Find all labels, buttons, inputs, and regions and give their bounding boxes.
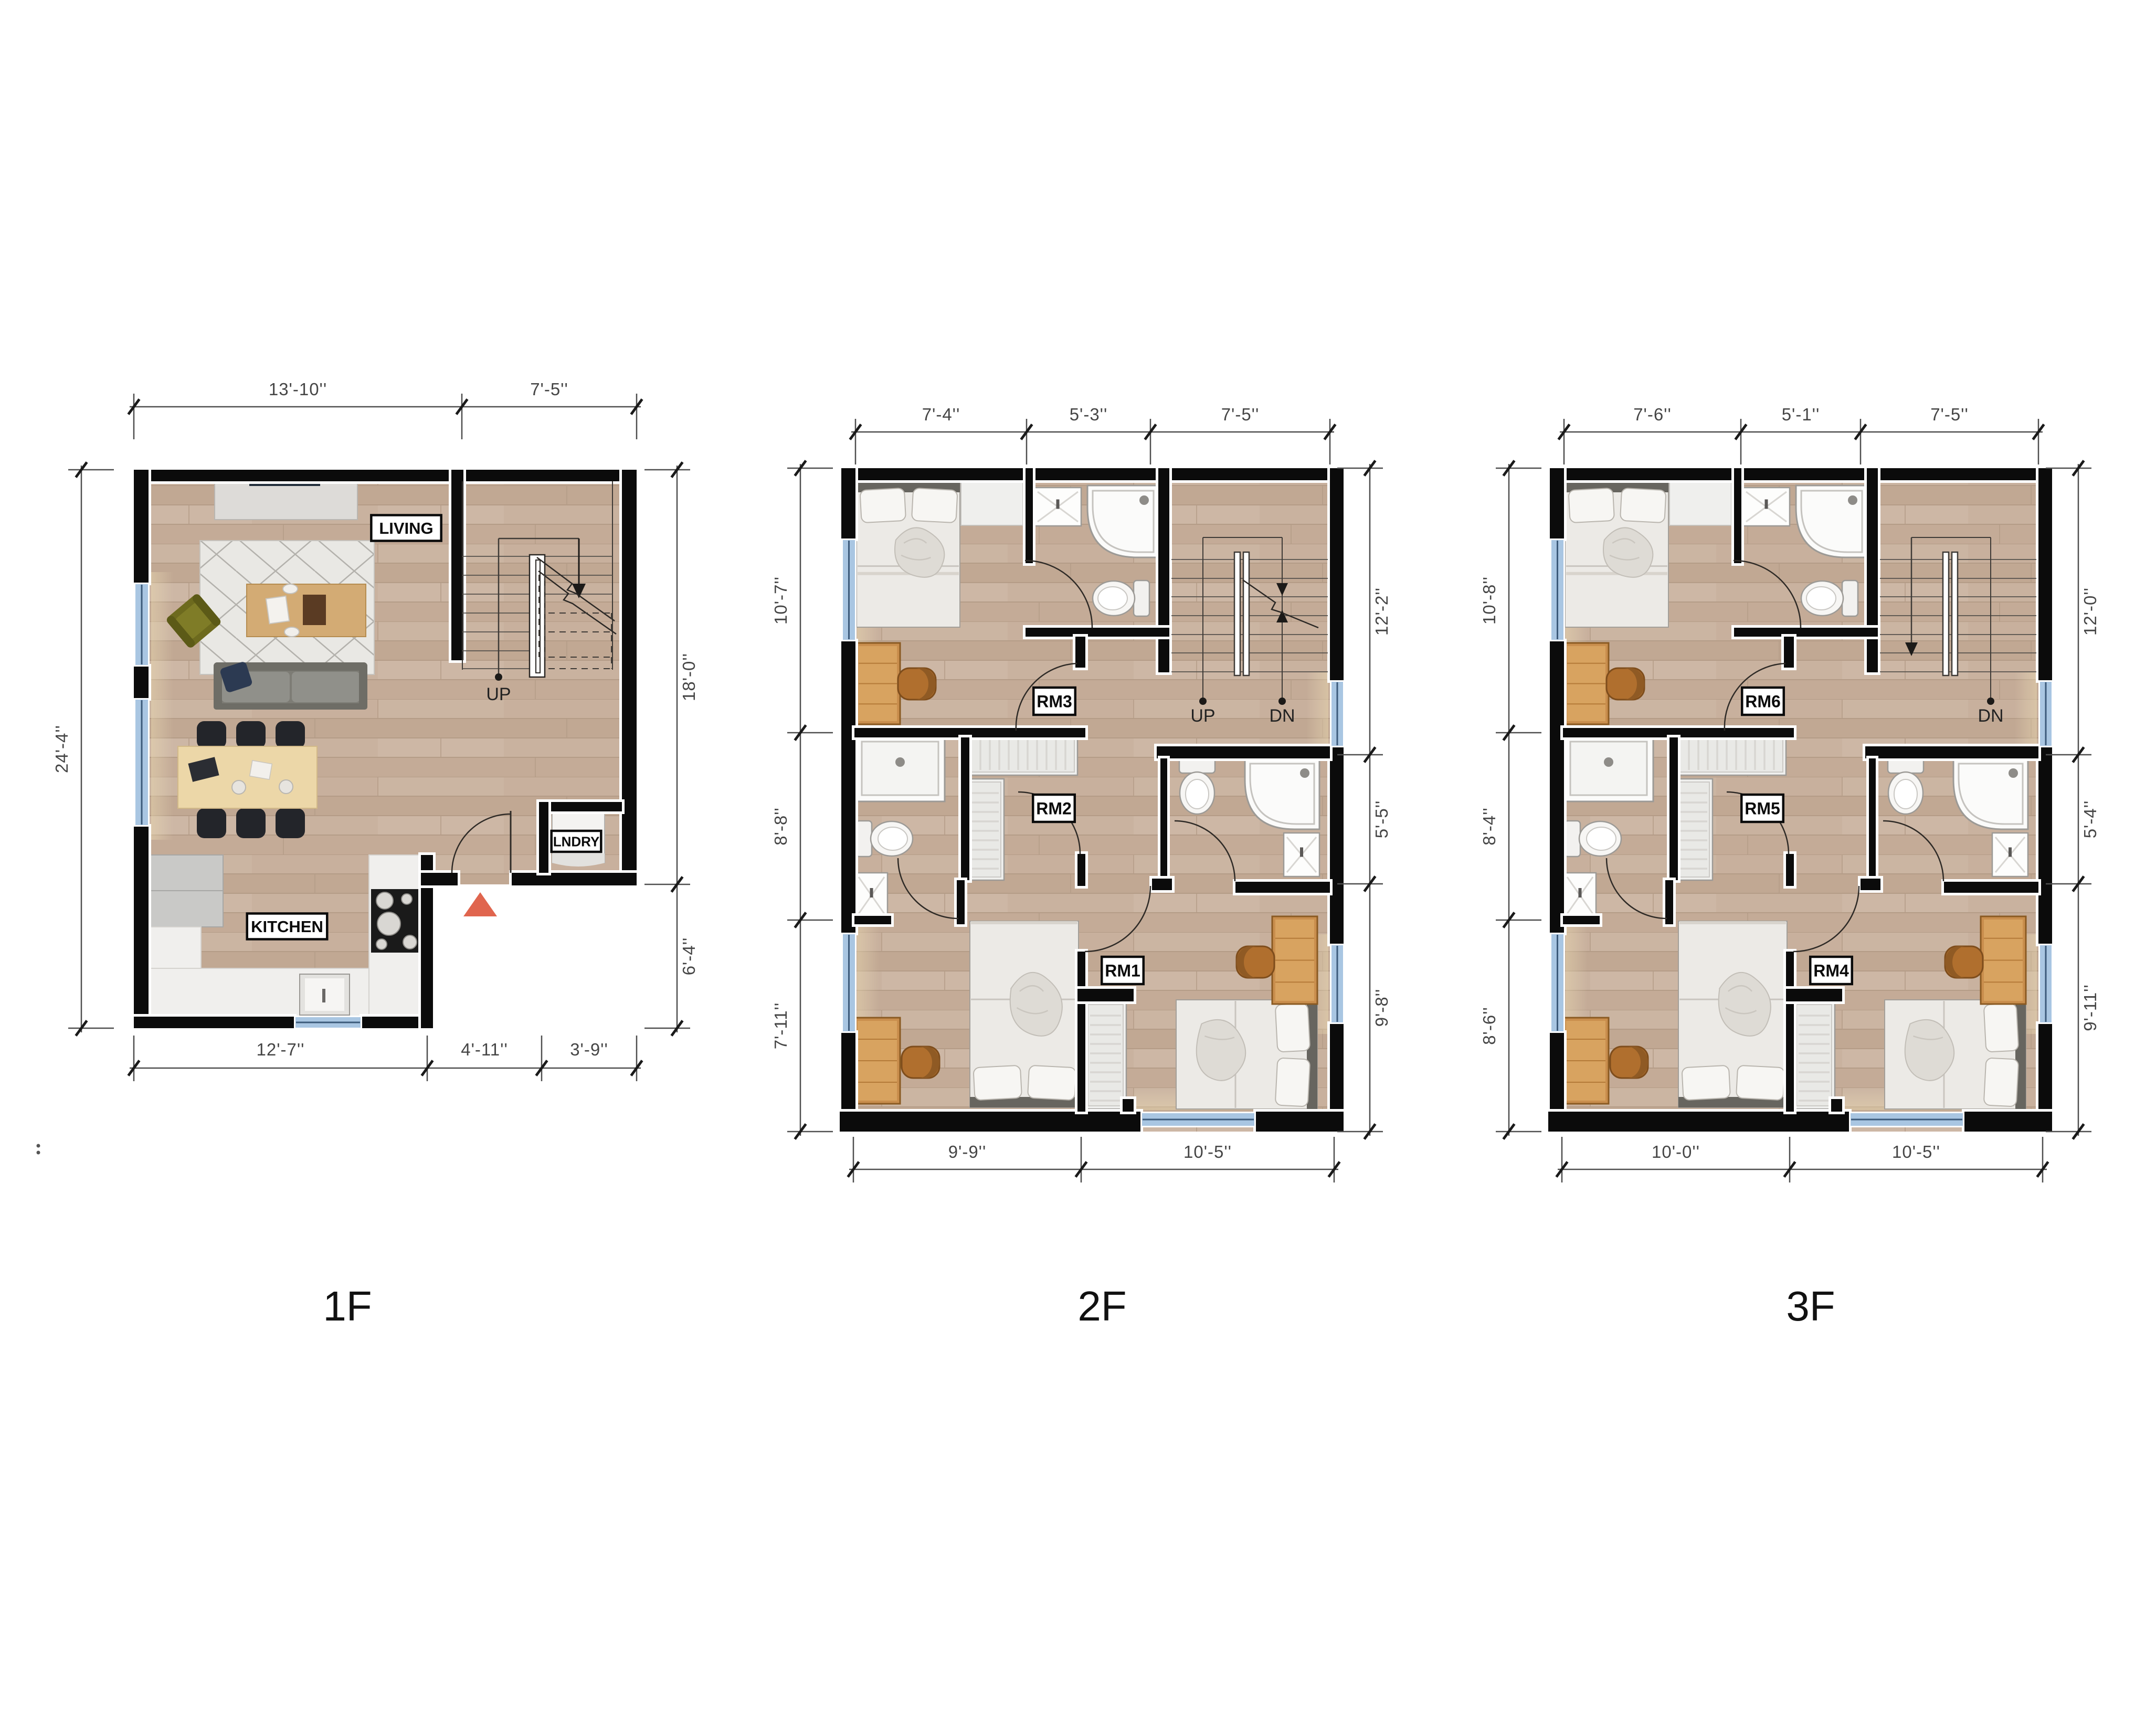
svg-text:7'-6'': 7'-6'': [1633, 405, 1672, 424]
svg-text:10'-5'': 10'-5'': [1892, 1142, 1940, 1161]
svg-text:6'-4'': 6'-4'': [679, 937, 699, 976]
svg-text:7'-5'': 7'-5'': [1930, 405, 1969, 424]
svg-text:3F: 3F: [1786, 1283, 1835, 1329]
svg-text:2F: 2F: [1077, 1283, 1126, 1329]
svg-text:10'-8'': 10'-8'': [1479, 576, 1499, 625]
svg-text:10'-0'': 10'-0'': [1652, 1142, 1700, 1161]
svg-text:9'-9'': 9'-9'': [948, 1142, 987, 1161]
svg-text:8'-4'': 8'-4'': [1479, 807, 1499, 846]
svg-text:LIVING: LIVING: [379, 519, 433, 537]
svg-text:5'-3'': 5'-3'': [1070, 405, 1108, 424]
svg-text:12'-7'': 12'-7'': [257, 1040, 305, 1059]
svg-text:KITCHEN: KITCHEN: [251, 917, 323, 936]
svg-text:LNDRY: LNDRY: [553, 833, 600, 849]
svg-text:DN: DN: [1978, 706, 2003, 726]
svg-text:3'-9'': 3'-9'': [570, 1040, 608, 1059]
svg-text:RM2: RM2: [1036, 799, 1072, 818]
svg-text:RM4: RM4: [1813, 962, 1849, 980]
svg-text:UP: UP: [1190, 706, 1215, 726]
svg-text:1F: 1F: [323, 1283, 372, 1329]
svg-text:12'-0'': 12'-0'': [2080, 587, 2100, 636]
svg-text:5'-4'': 5'-4'': [2080, 800, 2100, 839]
svg-text:RM6: RM6: [1745, 692, 1781, 711]
svg-text:10'-7'': 10'-7'': [771, 576, 790, 625]
svg-text:UP: UP: [486, 684, 511, 704]
svg-text:5'-1'': 5'-1'': [1782, 405, 1820, 424]
svg-text:7'-5'': 7'-5'': [1221, 405, 1260, 424]
svg-text:12'-2'': 12'-2'': [1372, 587, 1391, 636]
svg-text:7'-4'': 7'-4'': [922, 405, 960, 424]
svg-text:7'-5'': 7'-5'': [530, 379, 568, 399]
svg-text:13'-10'': 13'-10'': [269, 379, 327, 399]
svg-text:10'-5'': 10'-5'': [1183, 1142, 1232, 1161]
svg-text:4'-11'': 4'-11'': [461, 1040, 508, 1059]
svg-text:DN: DN: [1269, 706, 1295, 726]
svg-text:9'-8'': 9'-8'': [1372, 989, 1391, 1027]
svg-text:RM1: RM1: [1105, 962, 1140, 980]
svg-text:8'-8'': 8'-8'': [771, 807, 790, 846]
svg-text:RM5: RM5: [1745, 799, 1780, 818]
svg-text:24'-4'': 24'-4'': [52, 725, 71, 773]
svg-text:18'-0'': 18'-0'': [679, 653, 699, 701]
svg-text:9'-11'': 9'-11'': [2080, 984, 2100, 1031]
svg-text:8'-6'': 8'-6'': [1479, 1007, 1499, 1045]
svg-text:RM3: RM3: [1037, 692, 1072, 711]
svg-text:5'-5'': 5'-5'': [1372, 800, 1391, 839]
svg-text:7'-11'': 7'-11'': [771, 1002, 790, 1050]
